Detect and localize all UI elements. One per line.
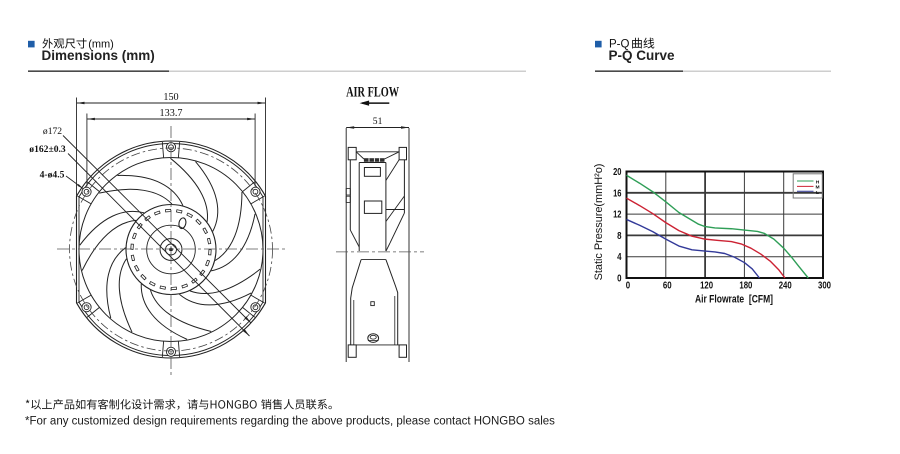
svg-text:H: H [816,179,820,185]
svg-text:0: 0 [626,281,631,292]
svg-text:M: M [815,185,819,191]
svg-text:Static Pressure(mmH²o): Static Pressure(mmH²o) [593,164,605,281]
svg-text:180: 180 [739,281,752,292]
svg-text:4-ø4.5: 4-ø4.5 [40,170,65,181]
svg-text:8: 8 [617,231,622,242]
svg-text:240: 240 [779,281,792,292]
svg-text:16: 16 [613,188,622,199]
svg-text:P-Q Curve: P-Q Curve [609,48,676,63]
svg-text:4: 4 [617,252,622,263]
svg-text:AIR FLOW: AIR FLOW [346,84,399,100]
svg-text:300: 300 [818,281,831,292]
svg-text:150: 150 [163,92,178,103]
svg-text:60: 60 [663,281,672,292]
svg-text:51: 51 [373,116,383,127]
svg-text:120: 120 [700,281,713,292]
svg-text:ø162±0.3: ø162±0.3 [29,144,66,155]
svg-text:133.7: 133.7 [160,108,183,119]
svg-text:L: L [816,190,819,196]
svg-text:12: 12 [613,210,622,221]
svg-text:20: 20 [613,167,622,178]
svg-text:0: 0 [617,274,622,285]
svg-text:Dimensions (mm): Dimensions (mm) [42,48,155,63]
svg-text:*For any customized design req: *For any customized design requirements … [25,416,555,428]
svg-text:Air Flowrate [CFM]: Air Flowrate [CFM] [695,294,773,306]
svg-text:ø172: ø172 [43,126,62,137]
